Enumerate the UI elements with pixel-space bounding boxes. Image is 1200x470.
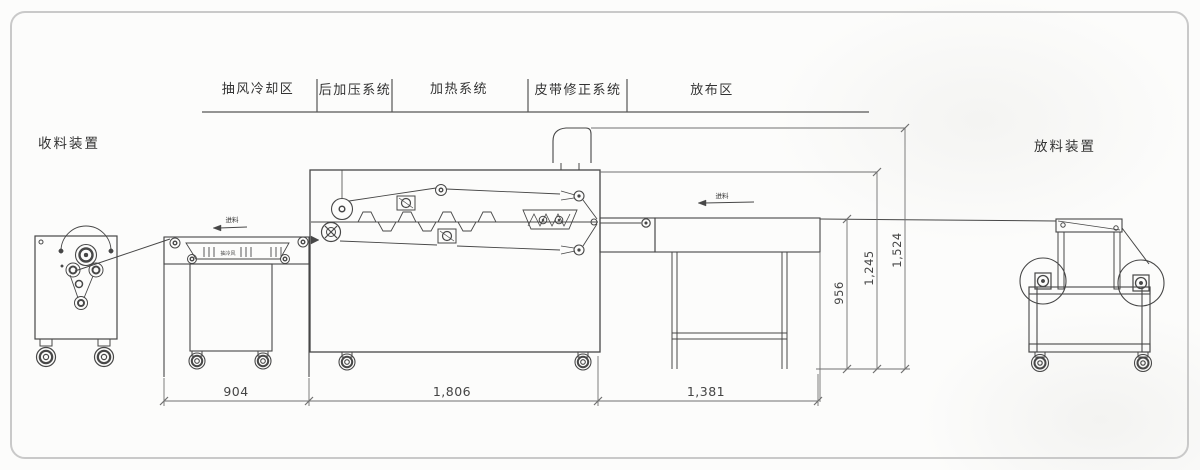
zone-label-post-press: 后加压系统: [319, 83, 392, 98]
unwinder-label: 放料装置: [1034, 139, 1096, 155]
cooling-conveyor: 抽冷风 进料: [164, 215, 309, 377]
heating-oven: [310, 128, 600, 370]
vent-label: 抽冷风: [220, 250, 235, 257]
winder-label: 收料装置: [38, 136, 100, 152]
vent-slots: [204, 247, 281, 257]
winder-caster-left: [37, 348, 56, 367]
drawing-page: 抽风冷却区 后加压系统 加热系统 皮带修正系统 放布区 收料装置 放料装置: [0, 0, 1200, 470]
dim-1245: 1,245: [862, 250, 876, 285]
delivery-table: 进料: [600, 191, 820, 369]
conveyor-caster-left: [189, 353, 205, 369]
zone-label-cloth-feed: 放布区: [690, 83, 734, 98]
machine-line-diagram: 抽风冷却区 后加压系统 加热系统 皮带修正系统 放布区 收料装置 放料装置: [0, 0, 1200, 470]
winder-machine: [35, 226, 117, 367]
unwinder-machine: [1020, 219, 1164, 372]
dim-1381: 1,381: [687, 384, 725, 399]
zone-label-belt-correction: 皮带修正系统: [534, 83, 621, 98]
feed-label-table: 进料: [716, 191, 730, 200]
oven-caster-right: [575, 354, 591, 370]
fabric-web-path: [75, 219, 1056, 271]
zone-label-heating: 加热系统: [430, 82, 488, 97]
dimensions-right: 956 1,245 1,524: [591, 124, 910, 402]
feed-label-cooling: 进料: [226, 215, 240, 224]
winder-caster-right: [95, 348, 114, 367]
dim-1806: 1,806: [433, 384, 471, 399]
feed-arrow-cooling: [213, 225, 247, 231]
exhaust-duct: [553, 128, 591, 170]
conveyor-caster-right: [255, 353, 271, 369]
oven-mechanism: [311, 170, 598, 255]
dim-904: 904: [223, 384, 248, 399]
zone-label-cooling: 抽风冷却区: [222, 82, 295, 97]
dim-1524: 1,524: [890, 232, 904, 267]
oven-caster-left: [339, 354, 355, 370]
feed-arrow-table: [698, 200, 754, 206]
dim-956: 956: [832, 281, 846, 304]
unwinder-caster-left: [1032, 355, 1049, 372]
unwinder-caster-right: [1135, 355, 1152, 372]
